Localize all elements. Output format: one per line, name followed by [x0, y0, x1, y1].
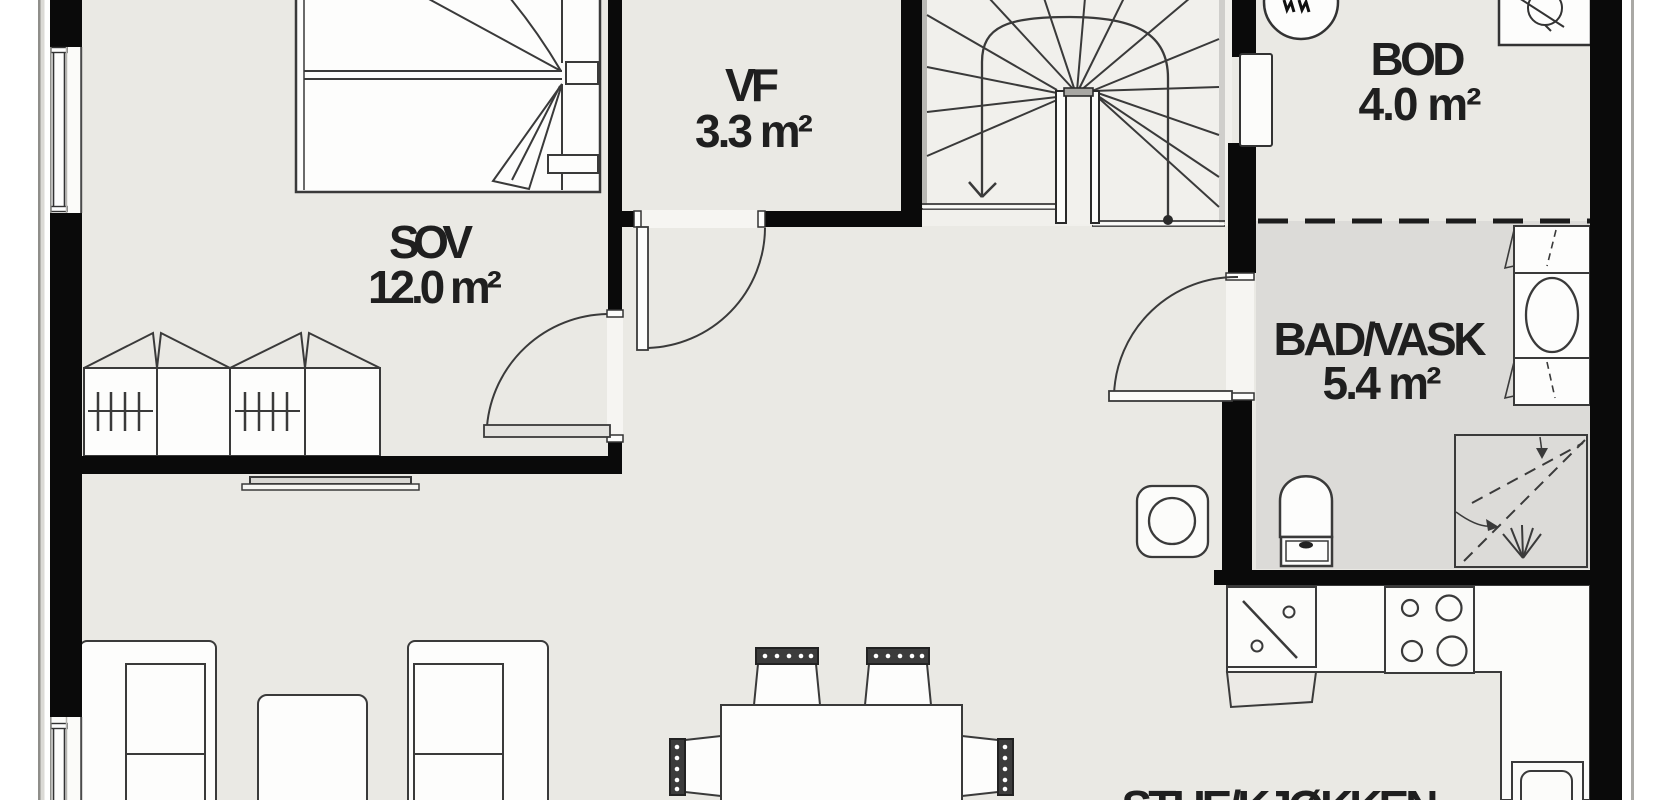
svg-text:5.4 m²: 5.4 m² — [1323, 357, 1442, 409]
svg-text:3.3 m²: 3.3 m² — [695, 105, 813, 157]
svg-text:VF: VF — [725, 59, 779, 111]
svg-text:STUE/KJØKKEN: STUE/KJØKKEN — [1122, 781, 1439, 800]
svg-text:12.0 m²: 12.0 m² — [368, 261, 502, 313]
svg-text:4.0 m²: 4.0 m² — [1359, 78, 1482, 130]
